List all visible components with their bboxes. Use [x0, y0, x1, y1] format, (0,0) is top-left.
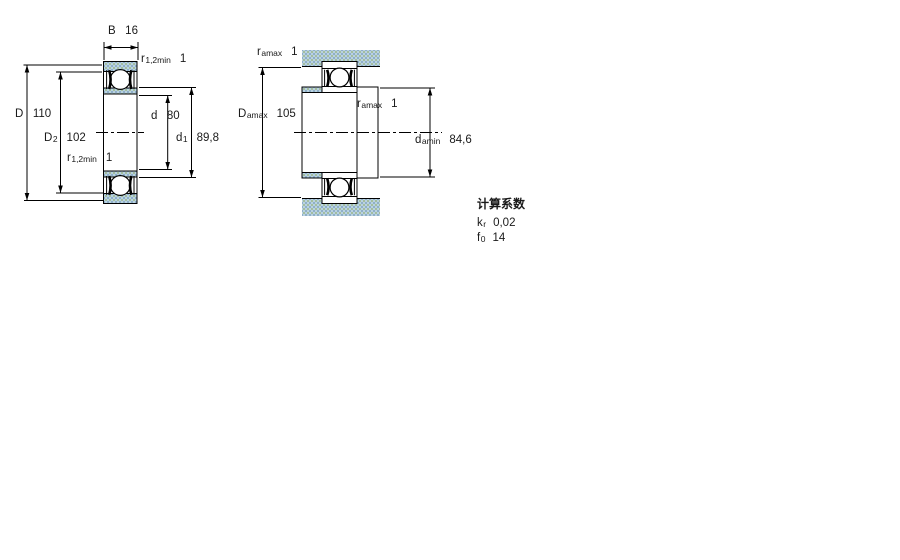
label-d: d80 [151, 110, 180, 123]
ball-top-icon [110, 70, 130, 90]
label-r-amax-top: ramax1 [257, 46, 298, 59]
ball-top-icon [330, 68, 349, 87]
label-r12min-bottom: r1,2min1 [67, 152, 112, 165]
label-d1: d189,8 [176, 132, 219, 145]
label-B-value: 16 [125, 25, 138, 37]
seal-top-left-icon [107, 70, 111, 89]
view2-bearing-top-section [322, 62, 357, 93]
seal-bottom-right-icon [130, 176, 134, 195]
view2-bearing-bottom-section [322, 173, 357, 204]
label-B: B16 [108, 25, 138, 38]
bearing-drawing-canvas: B16 r1,2min1 D110 D2102 d80 d189,8 r1,2m… [0, 0, 900, 560]
label-r12min-top: r1,2min1 [141, 53, 186, 66]
calc-factor-f0: f014 [477, 232, 505, 245]
ball-bottom-icon [110, 176, 130, 196]
label-d-amin: damin84,6 [415, 134, 472, 147]
label-D: D110 [15, 108, 51, 121]
seal-top-right-icon [130, 70, 134, 89]
label-D-amax: Damax105 [238, 108, 296, 121]
label-D2: D2102 [44, 132, 86, 145]
ball-bottom-icon [330, 178, 349, 197]
view2-mounting-drawing [294, 62, 442, 204]
view1-bearing-cross-section [96, 62, 144, 204]
seal-bottom-left-icon [107, 176, 111, 195]
label-B-symbol: B [108, 25, 116, 37]
technical-drawing-linework [0, 0, 900, 560]
calc-factors-heading: 计算系数 [477, 195, 525, 212]
calc-factor-kr: kr0,02 [477, 217, 515, 230]
dimension-B [104, 42, 138, 60]
label-r-amax-mid: ramax1 [357, 98, 398, 111]
